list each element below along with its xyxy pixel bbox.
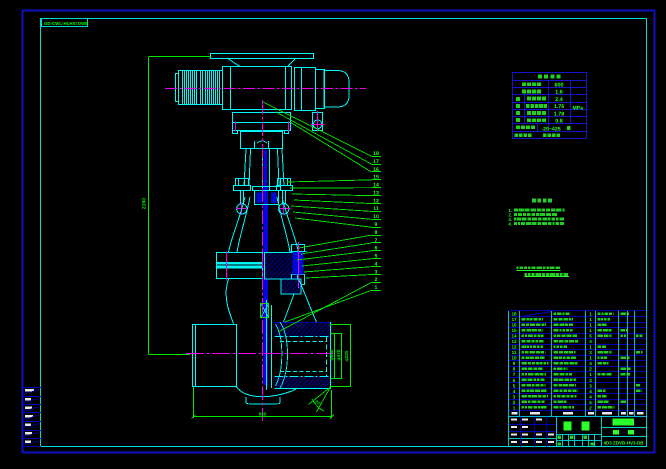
svg-text:1: 1 xyxy=(589,323,592,328)
svg-text:6: 6 xyxy=(589,334,592,339)
svg-text:13: 13 xyxy=(511,339,517,344)
svg-text:-20~425: -20~425 xyxy=(541,127,560,133)
svg-text:16: 16 xyxy=(511,323,517,328)
svg-text:φ225: φ225 xyxy=(344,350,349,361)
svg-text:2: 2 xyxy=(589,405,592,410)
svg-text:GD-CWL-HLHXI DWB: GD-CWL-HLHXI DWB xyxy=(44,21,88,26)
svg-text:14: 14 xyxy=(511,334,517,339)
svg-text:1: 1 xyxy=(589,356,592,361)
svg-text:11: 11 xyxy=(512,350,517,355)
svg-text:17: 17 xyxy=(511,317,517,322)
svg-text:850: 850 xyxy=(259,411,267,416)
svg-text:4: 4 xyxy=(589,394,592,399)
svg-text:7: 7 xyxy=(513,372,516,377)
svg-text:10: 10 xyxy=(373,214,379,220)
svg-text:4.: 4. xyxy=(508,221,512,226)
svg-text:1.76: 1.76 xyxy=(554,104,565,110)
svg-text:18: 18 xyxy=(373,151,379,157)
svg-text:3: 3 xyxy=(513,394,516,399)
svg-text:1.78: 1.78 xyxy=(554,112,565,118)
svg-text:4: 4 xyxy=(589,361,592,366)
svg-text:0.8: 0.8 xyxy=(555,119,563,125)
svg-text:9: 9 xyxy=(375,222,378,228)
svg-text:16: 16 xyxy=(373,167,379,173)
svg-text:1: 1 xyxy=(375,285,378,291)
svg-text:4: 4 xyxy=(589,389,592,394)
svg-text:6: 6 xyxy=(589,400,592,405)
svg-text:11: 11 xyxy=(373,206,379,212)
svg-text:10: 10 xyxy=(511,356,517,361)
svg-text:5: 5 xyxy=(375,254,378,260)
svg-text:7: 7 xyxy=(375,238,378,244)
svg-text:4: 4 xyxy=(513,389,516,394)
svg-text:2: 2 xyxy=(513,400,516,405)
svg-text:15: 15 xyxy=(511,328,517,333)
svg-text:4D3 ZDVB-HV3-DB: 4D3 ZDVB-HV3-DB xyxy=(603,440,644,445)
svg-text:8: 8 xyxy=(513,367,516,372)
svg-text:12: 12 xyxy=(511,345,517,350)
svg-text:1: 1 xyxy=(589,312,592,317)
svg-text:φ600: φ600 xyxy=(329,349,334,360)
svg-text:2: 2 xyxy=(589,367,592,372)
svg-text:13: 13 xyxy=(373,190,379,196)
svg-text:2160: 2160 xyxy=(142,198,148,209)
svg-text:18: 18 xyxy=(511,312,517,317)
svg-text:2.4: 2.4 xyxy=(555,97,563,103)
svg-text:12: 12 xyxy=(373,198,379,204)
svg-text:MPa: MPa xyxy=(572,106,583,112)
svg-text:3: 3 xyxy=(589,378,592,383)
svg-text:φ470: φ470 xyxy=(336,349,341,360)
svg-text:3: 3 xyxy=(589,383,592,388)
svg-text:5: 5 xyxy=(513,383,516,388)
svg-text:17: 17 xyxy=(373,159,379,165)
svg-text:9: 9 xyxy=(513,361,516,366)
svg-text:4: 4 xyxy=(589,339,592,344)
svg-text:600: 600 xyxy=(555,83,564,89)
svg-text:6: 6 xyxy=(513,378,516,383)
svg-text:3: 3 xyxy=(375,269,378,275)
svg-text:2: 2 xyxy=(375,277,378,283)
svg-text:4: 4 xyxy=(375,261,378,267)
svg-text:1: 1 xyxy=(513,405,516,410)
svg-text:8: 8 xyxy=(375,230,378,236)
svg-text:14: 14 xyxy=(373,183,379,189)
svg-text:1.6: 1.6 xyxy=(555,90,563,96)
svg-text:15: 15 xyxy=(373,175,379,181)
svg-text:1: 1 xyxy=(589,317,592,322)
svg-text:1: 1 xyxy=(589,372,592,377)
svg-text:3: 3 xyxy=(589,350,592,355)
svg-text:1: 1 xyxy=(589,345,592,350)
svg-text:1: 1 xyxy=(589,328,592,333)
svg-text:6: 6 xyxy=(375,246,378,252)
